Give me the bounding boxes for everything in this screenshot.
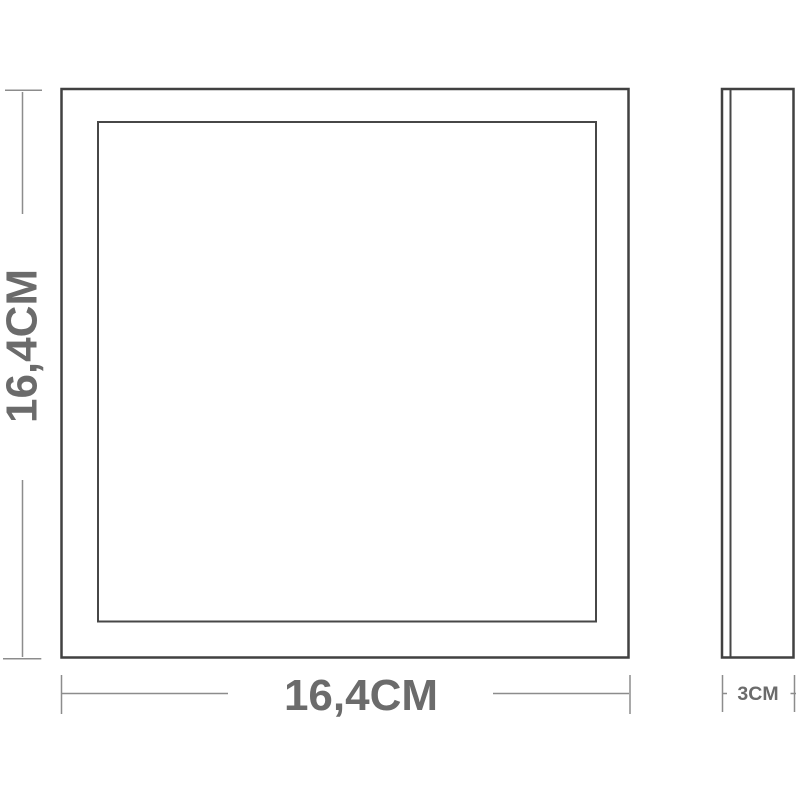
svg-text:16,4CM: 16,4CM xyxy=(0,269,47,423)
svg-text:3CM: 3CM xyxy=(737,683,778,705)
svg-text:16,4CM: 16,4CM xyxy=(284,671,438,720)
